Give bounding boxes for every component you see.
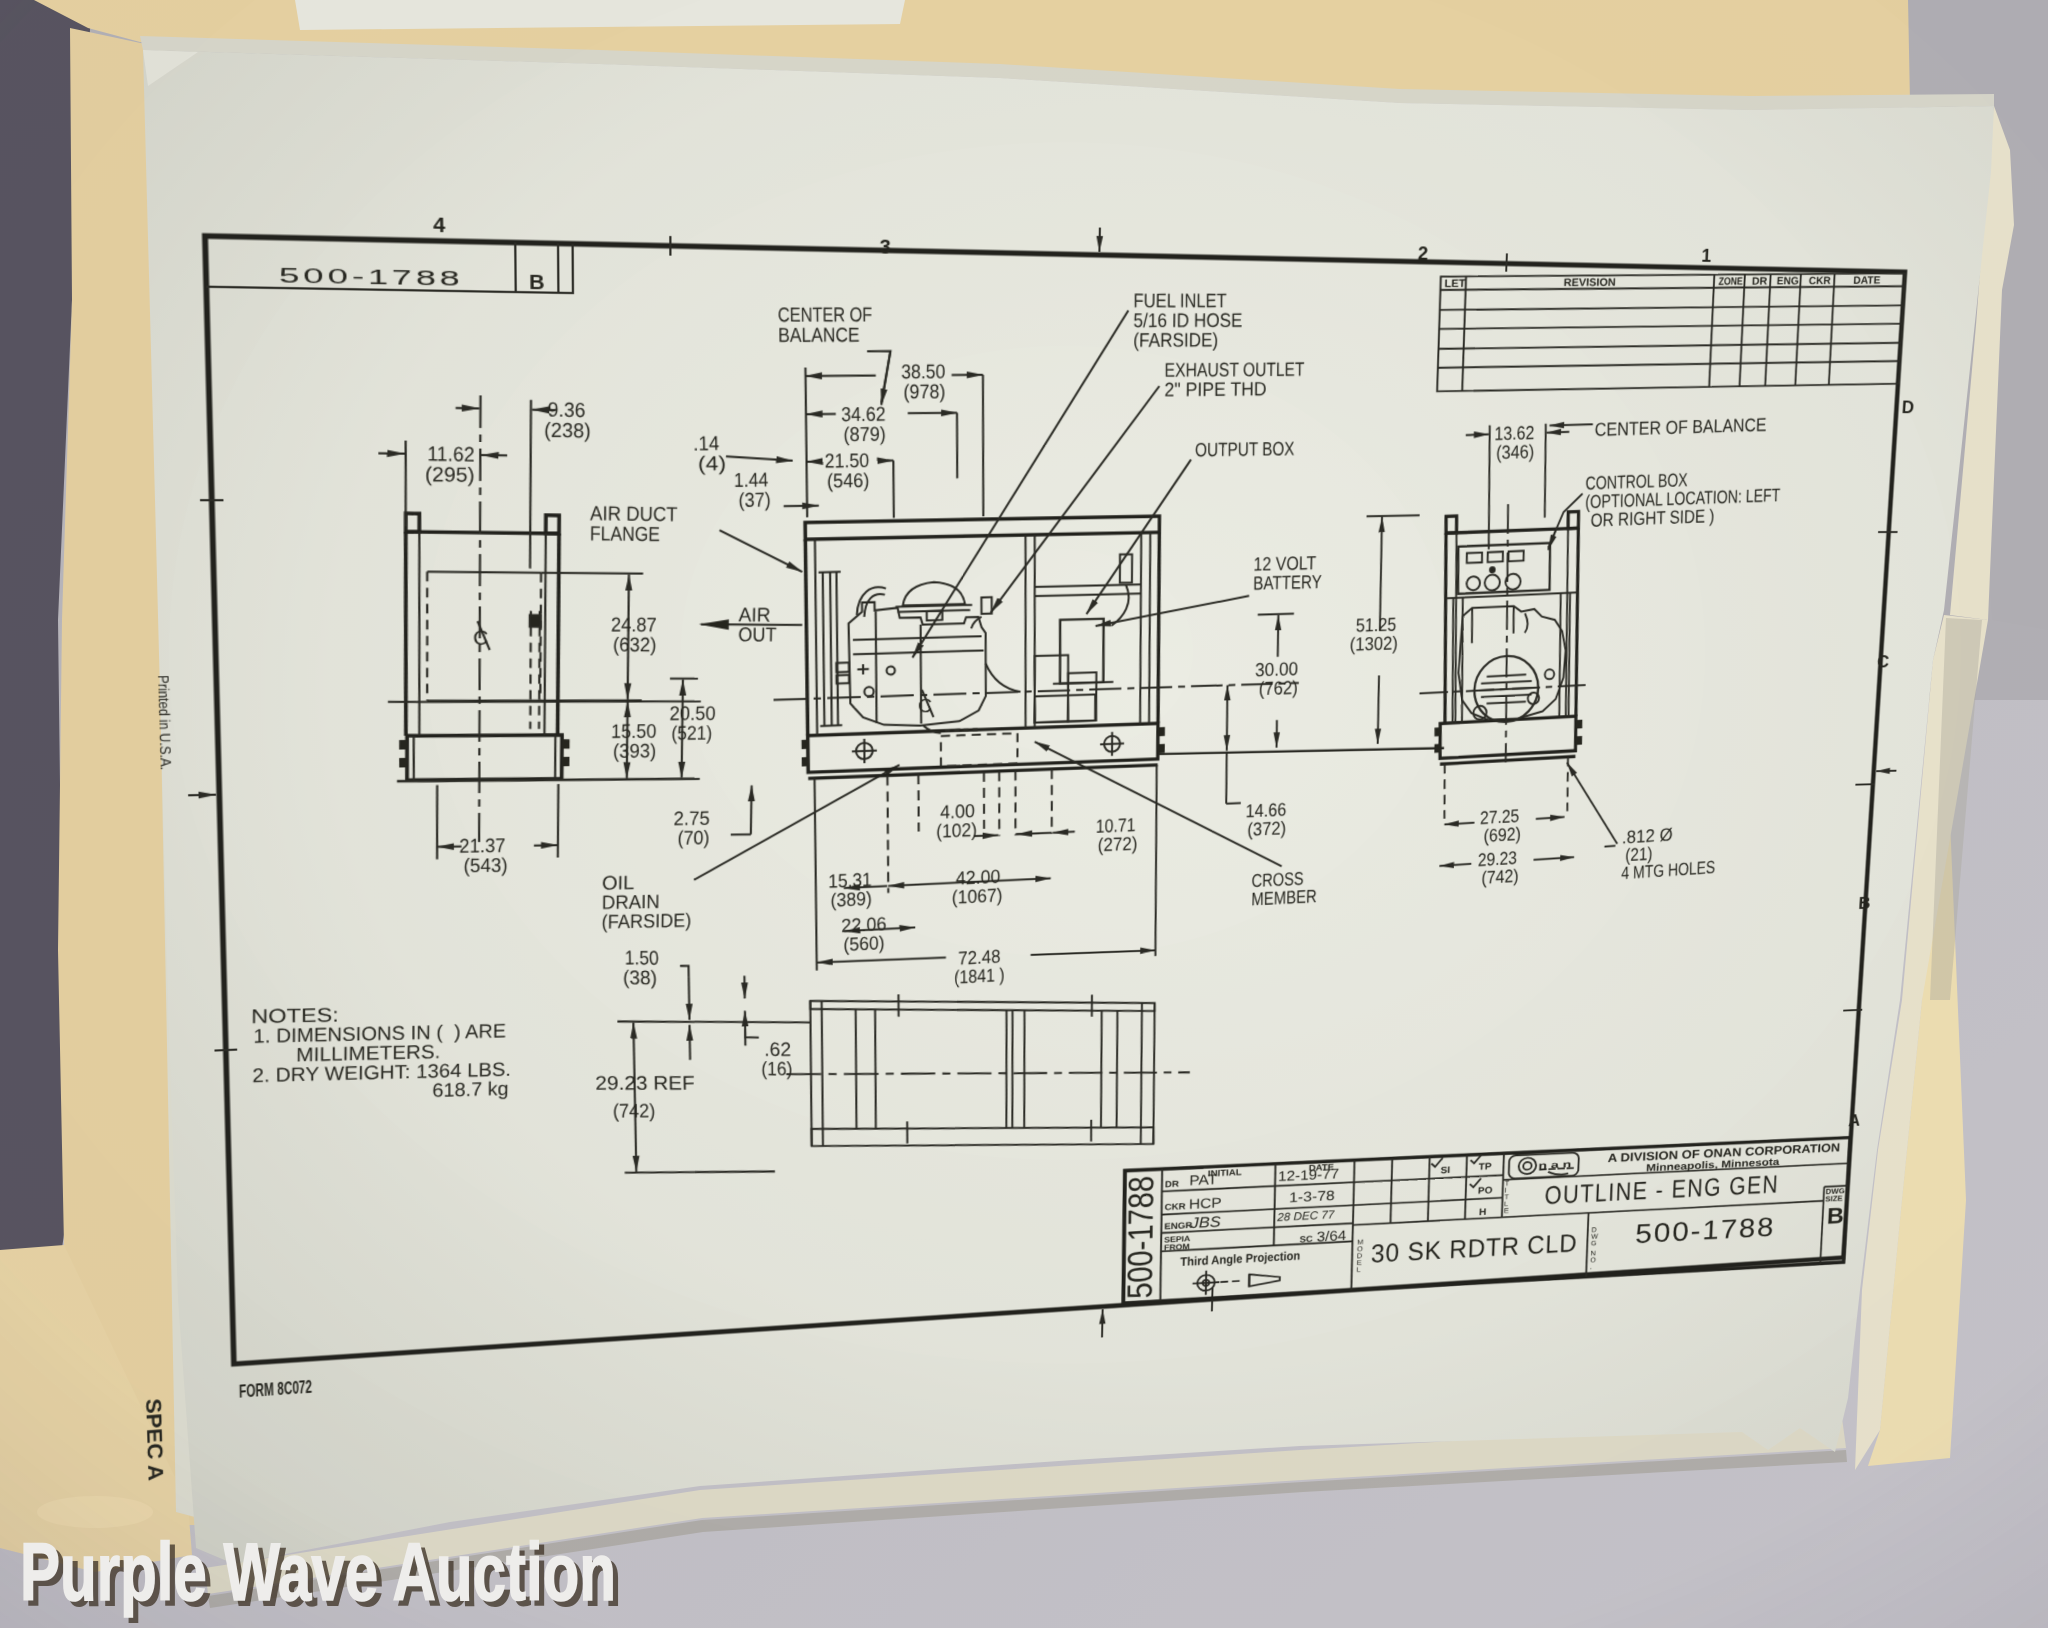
svg-text:Purple Wave Auction: Purple Wave Auction bbox=[20, 1527, 616, 1618]
